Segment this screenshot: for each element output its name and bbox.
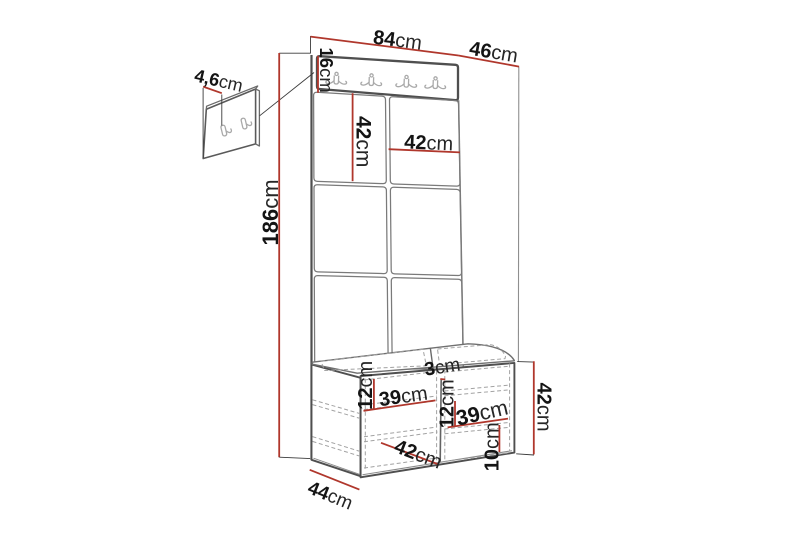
svg-text:186cm: 186cm bbox=[258, 179, 283, 245]
svg-text:10cm: 10cm bbox=[482, 422, 504, 471]
svg-text:42cm: 42cm bbox=[533, 383, 555, 432]
svg-text:42cm: 42cm bbox=[351, 116, 374, 167]
svg-text:42cm: 42cm bbox=[404, 131, 454, 155]
svg-text:16cm: 16cm bbox=[316, 48, 337, 93]
svg-text:12cm: 12cm bbox=[355, 361, 377, 410]
svg-text:12cm: 12cm bbox=[436, 379, 458, 428]
